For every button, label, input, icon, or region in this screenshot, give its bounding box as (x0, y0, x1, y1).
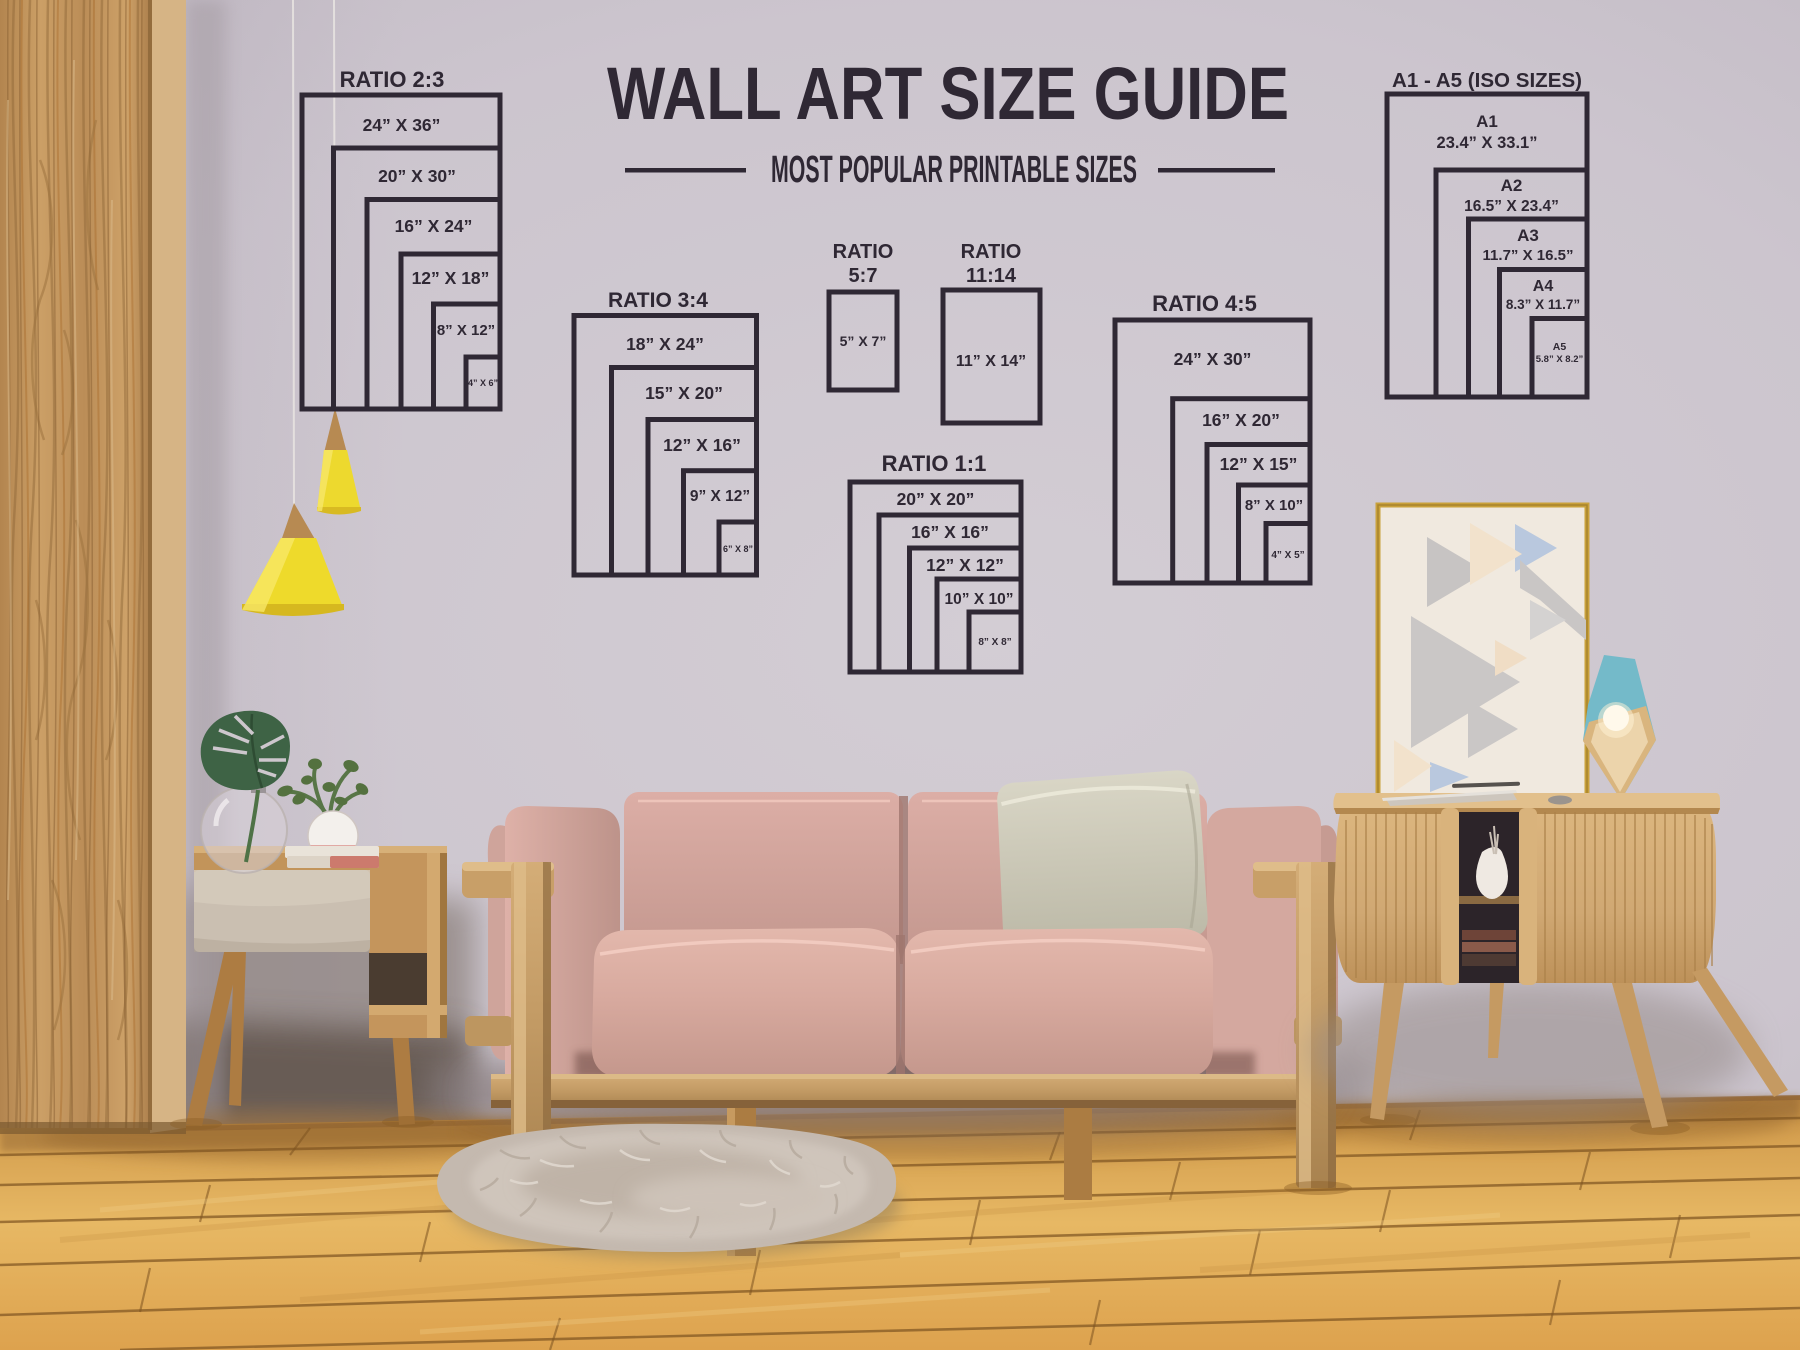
svg-text:RATIO 4:5: RATIO 4:5 (1152, 291, 1257, 316)
svg-text:A3: A3 (1517, 226, 1539, 245)
svg-text:8” X 8”: 8” X 8” (978, 637, 1011, 648)
svg-text:11” X 14”: 11” X 14” (956, 353, 1026, 370)
svg-text:8” X 12”: 8” X 12” (437, 322, 495, 339)
svg-text:4” X 5”: 4” X 5” (1271, 550, 1304, 561)
svg-text:12” X 18”: 12” X 18” (412, 268, 490, 288)
svg-text:RATIO: RATIO (961, 241, 1022, 263)
svg-text:WALL ART SIZE GUIDE: WALL ART SIZE GUIDE (607, 52, 1289, 135)
svg-text:11:14: 11:14 (966, 265, 1017, 287)
svg-text:11.7” X 16.5”: 11.7” X 16.5” (1483, 247, 1574, 264)
svg-text:18” X 24”: 18” X 24” (626, 334, 704, 354)
svg-text:15” X 20”: 15” X 20” (645, 383, 723, 403)
svg-text:RATIO 3:4: RATIO 3:4 (608, 289, 708, 312)
svg-text:16” X 24”: 16” X 24” (395, 216, 473, 236)
svg-text:6” X 8”: 6” X 8” (723, 544, 753, 554)
svg-text:5:7: 5:7 (849, 265, 878, 287)
svg-text:12” X 12”: 12” X 12” (926, 555, 1004, 575)
svg-text:RATIO: RATIO (833, 241, 894, 263)
svg-text:8.3” X 11.7”: 8.3” X 11.7” (1506, 297, 1580, 312)
svg-text:A2: A2 (1501, 176, 1523, 195)
svg-text:24” X 36”: 24” X 36” (363, 115, 441, 135)
svg-text:16.5” X 23.4”: 16.5” X 23.4” (1464, 198, 1559, 215)
svg-text:16” X 20”: 16” X 20” (1202, 410, 1280, 430)
svg-text:12” X 16”: 12” X 16” (663, 435, 741, 455)
svg-text:16” X 16”: 16” X 16” (911, 522, 989, 542)
svg-text:9” X 12”: 9” X 12” (690, 488, 750, 505)
svg-text:5” X 7”: 5” X 7” (840, 333, 887, 349)
svg-text:8” X 10”: 8” X 10” (1245, 497, 1303, 514)
svg-text:4” X 6”: 4” X 6” (468, 378, 498, 388)
svg-text:23.4” X 33.1”: 23.4” X 33.1” (1437, 134, 1538, 152)
svg-text:24” X 30”: 24” X 30” (1174, 349, 1252, 369)
svg-text:5.8” X 8.2”: 5.8” X 8.2” (1536, 354, 1584, 365)
svg-text:A4: A4 (1533, 278, 1554, 295)
svg-text:20” X 30”: 20” X 30” (378, 166, 456, 186)
svg-text:RATIO 1:1: RATIO 1:1 (882, 451, 987, 476)
svg-text:12” X 15”: 12” X 15” (1220, 454, 1298, 474)
svg-text:20” X 20”: 20” X 20” (897, 489, 975, 509)
svg-text:RATIO 2:3: RATIO 2:3 (340, 67, 445, 92)
svg-text:MOST POPULAR PRINTABLE SIZES: MOST POPULAR PRINTABLE SIZES (771, 149, 1137, 191)
svg-text:A1 - A5 (ISO SIZES): A1 - A5 (ISO SIZES) (1392, 70, 1582, 92)
svg-text:A1: A1 (1476, 112, 1498, 131)
svg-text:A5: A5 (1553, 341, 1567, 353)
svg-text:10” X 10”: 10” X 10” (945, 591, 1014, 608)
